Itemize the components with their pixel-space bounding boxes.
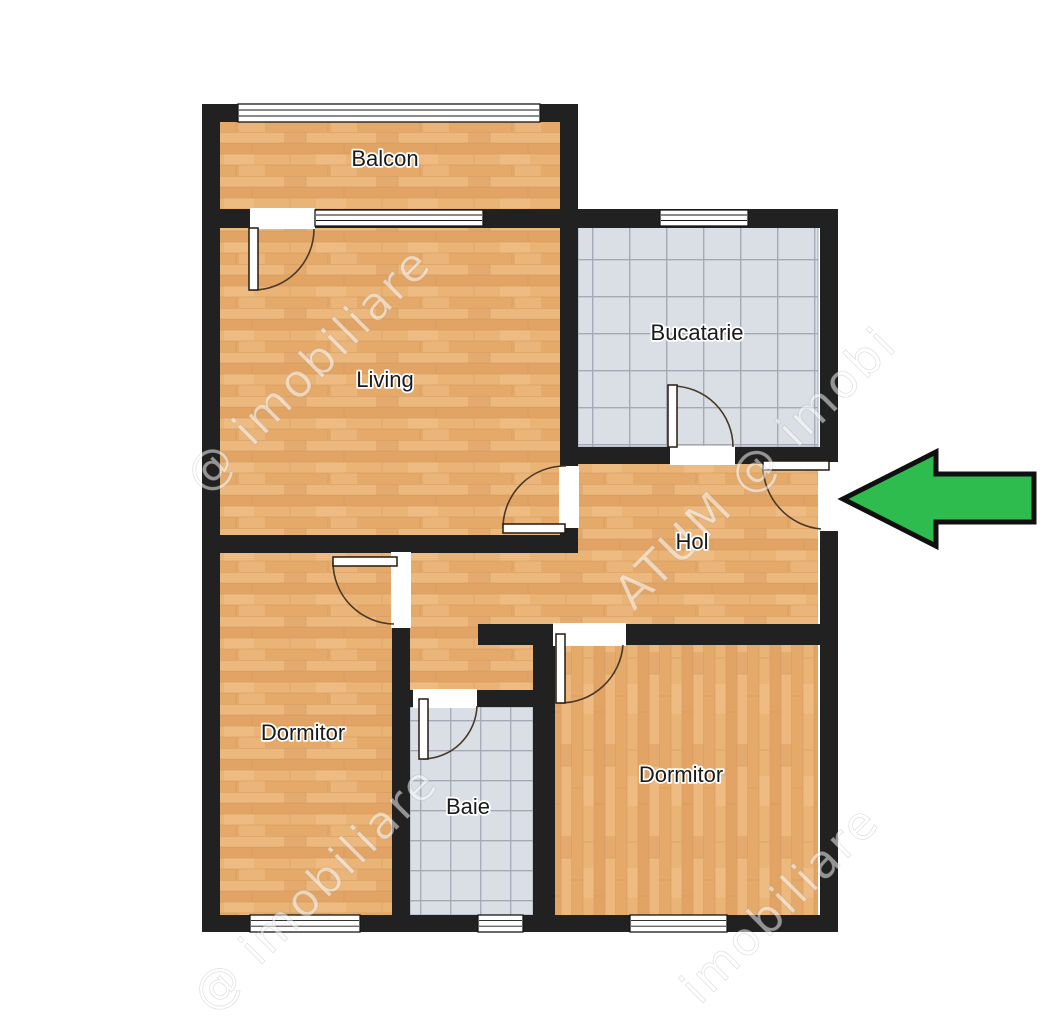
doorway-living-hol <box>559 466 579 528</box>
room-label-hol: Hol <box>675 529 708 554</box>
room-label-balcon: Balcon <box>351 146 418 171</box>
doorway-entrance <box>818 462 839 531</box>
window-balcon-top <box>238 104 540 122</box>
wall-living-bottom <box>202 535 578 553</box>
floor-plan: @ imobiliare ATUM @ imobi @ imobiliare i… <box>0 0 1053 1024</box>
door-leaf <box>249 228 258 290</box>
door-leaf <box>668 385 677 447</box>
wall-hol-bottom-east <box>625 624 838 645</box>
window-bucatarie <box>660 210 748 226</box>
room-label-baie: Baie <box>446 794 490 819</box>
wall-exterior-left <box>202 104 220 932</box>
room-label-living: Living <box>356 367 413 392</box>
doorway-balcon <box>250 208 315 229</box>
window-living-balcon <box>315 210 483 226</box>
floor-plan-page: @ imobiliare ATUM @ imobi @ imobiliare i… <box>0 0 1053 1024</box>
window-baie <box>478 915 523 932</box>
door-leaf <box>333 557 397 566</box>
door-leaf <box>503 524 565 533</box>
window-dormitor-right <box>630 915 727 932</box>
wall-baie-right <box>533 640 555 932</box>
room-hol-floor-west <box>410 553 578 624</box>
door-leaf <box>556 634 565 703</box>
room-label-dormitor-right: Dormitor <box>639 762 723 787</box>
room-label-dormitor-left: Dormitor <box>261 720 345 745</box>
door-leaf <box>419 699 428 759</box>
room-label-bucatarie: Bucatarie <box>651 320 744 345</box>
